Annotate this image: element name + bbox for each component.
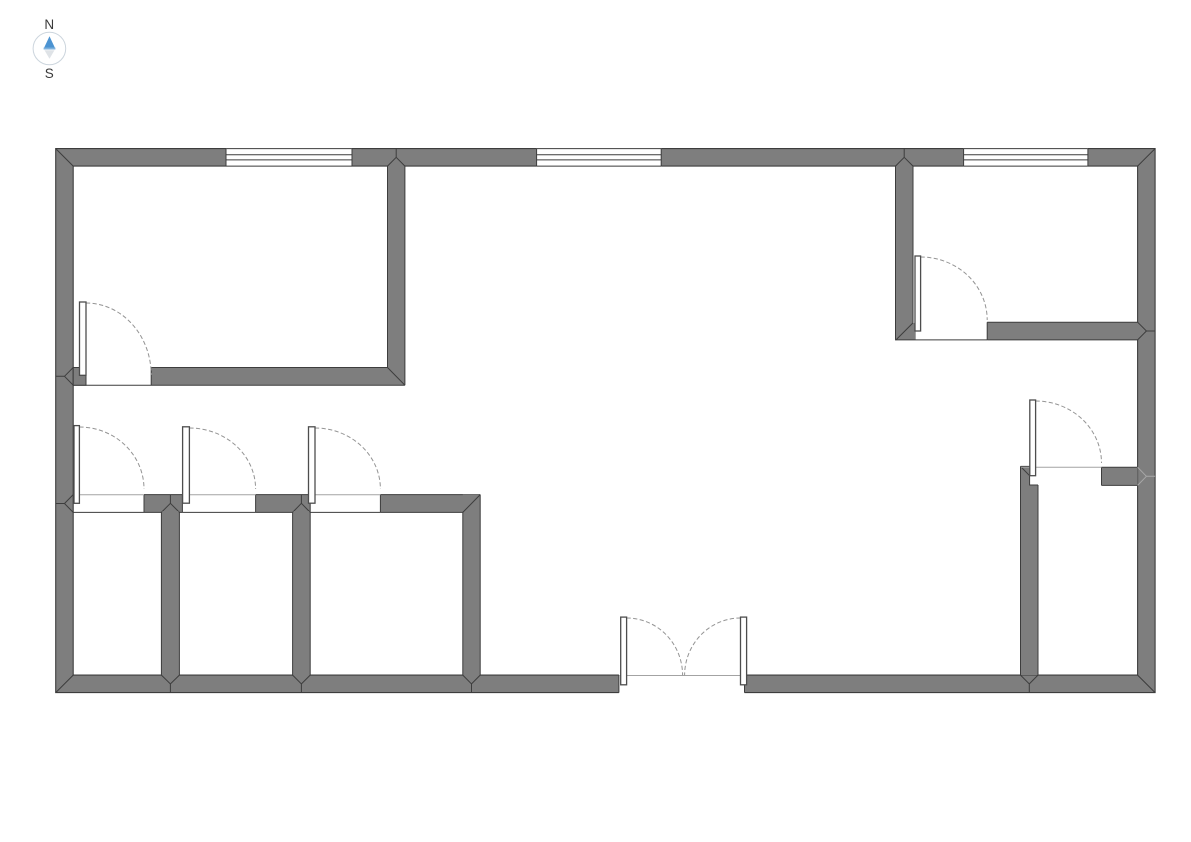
svg-text:N: N xyxy=(44,17,54,32)
svg-text:S: S xyxy=(45,66,54,81)
